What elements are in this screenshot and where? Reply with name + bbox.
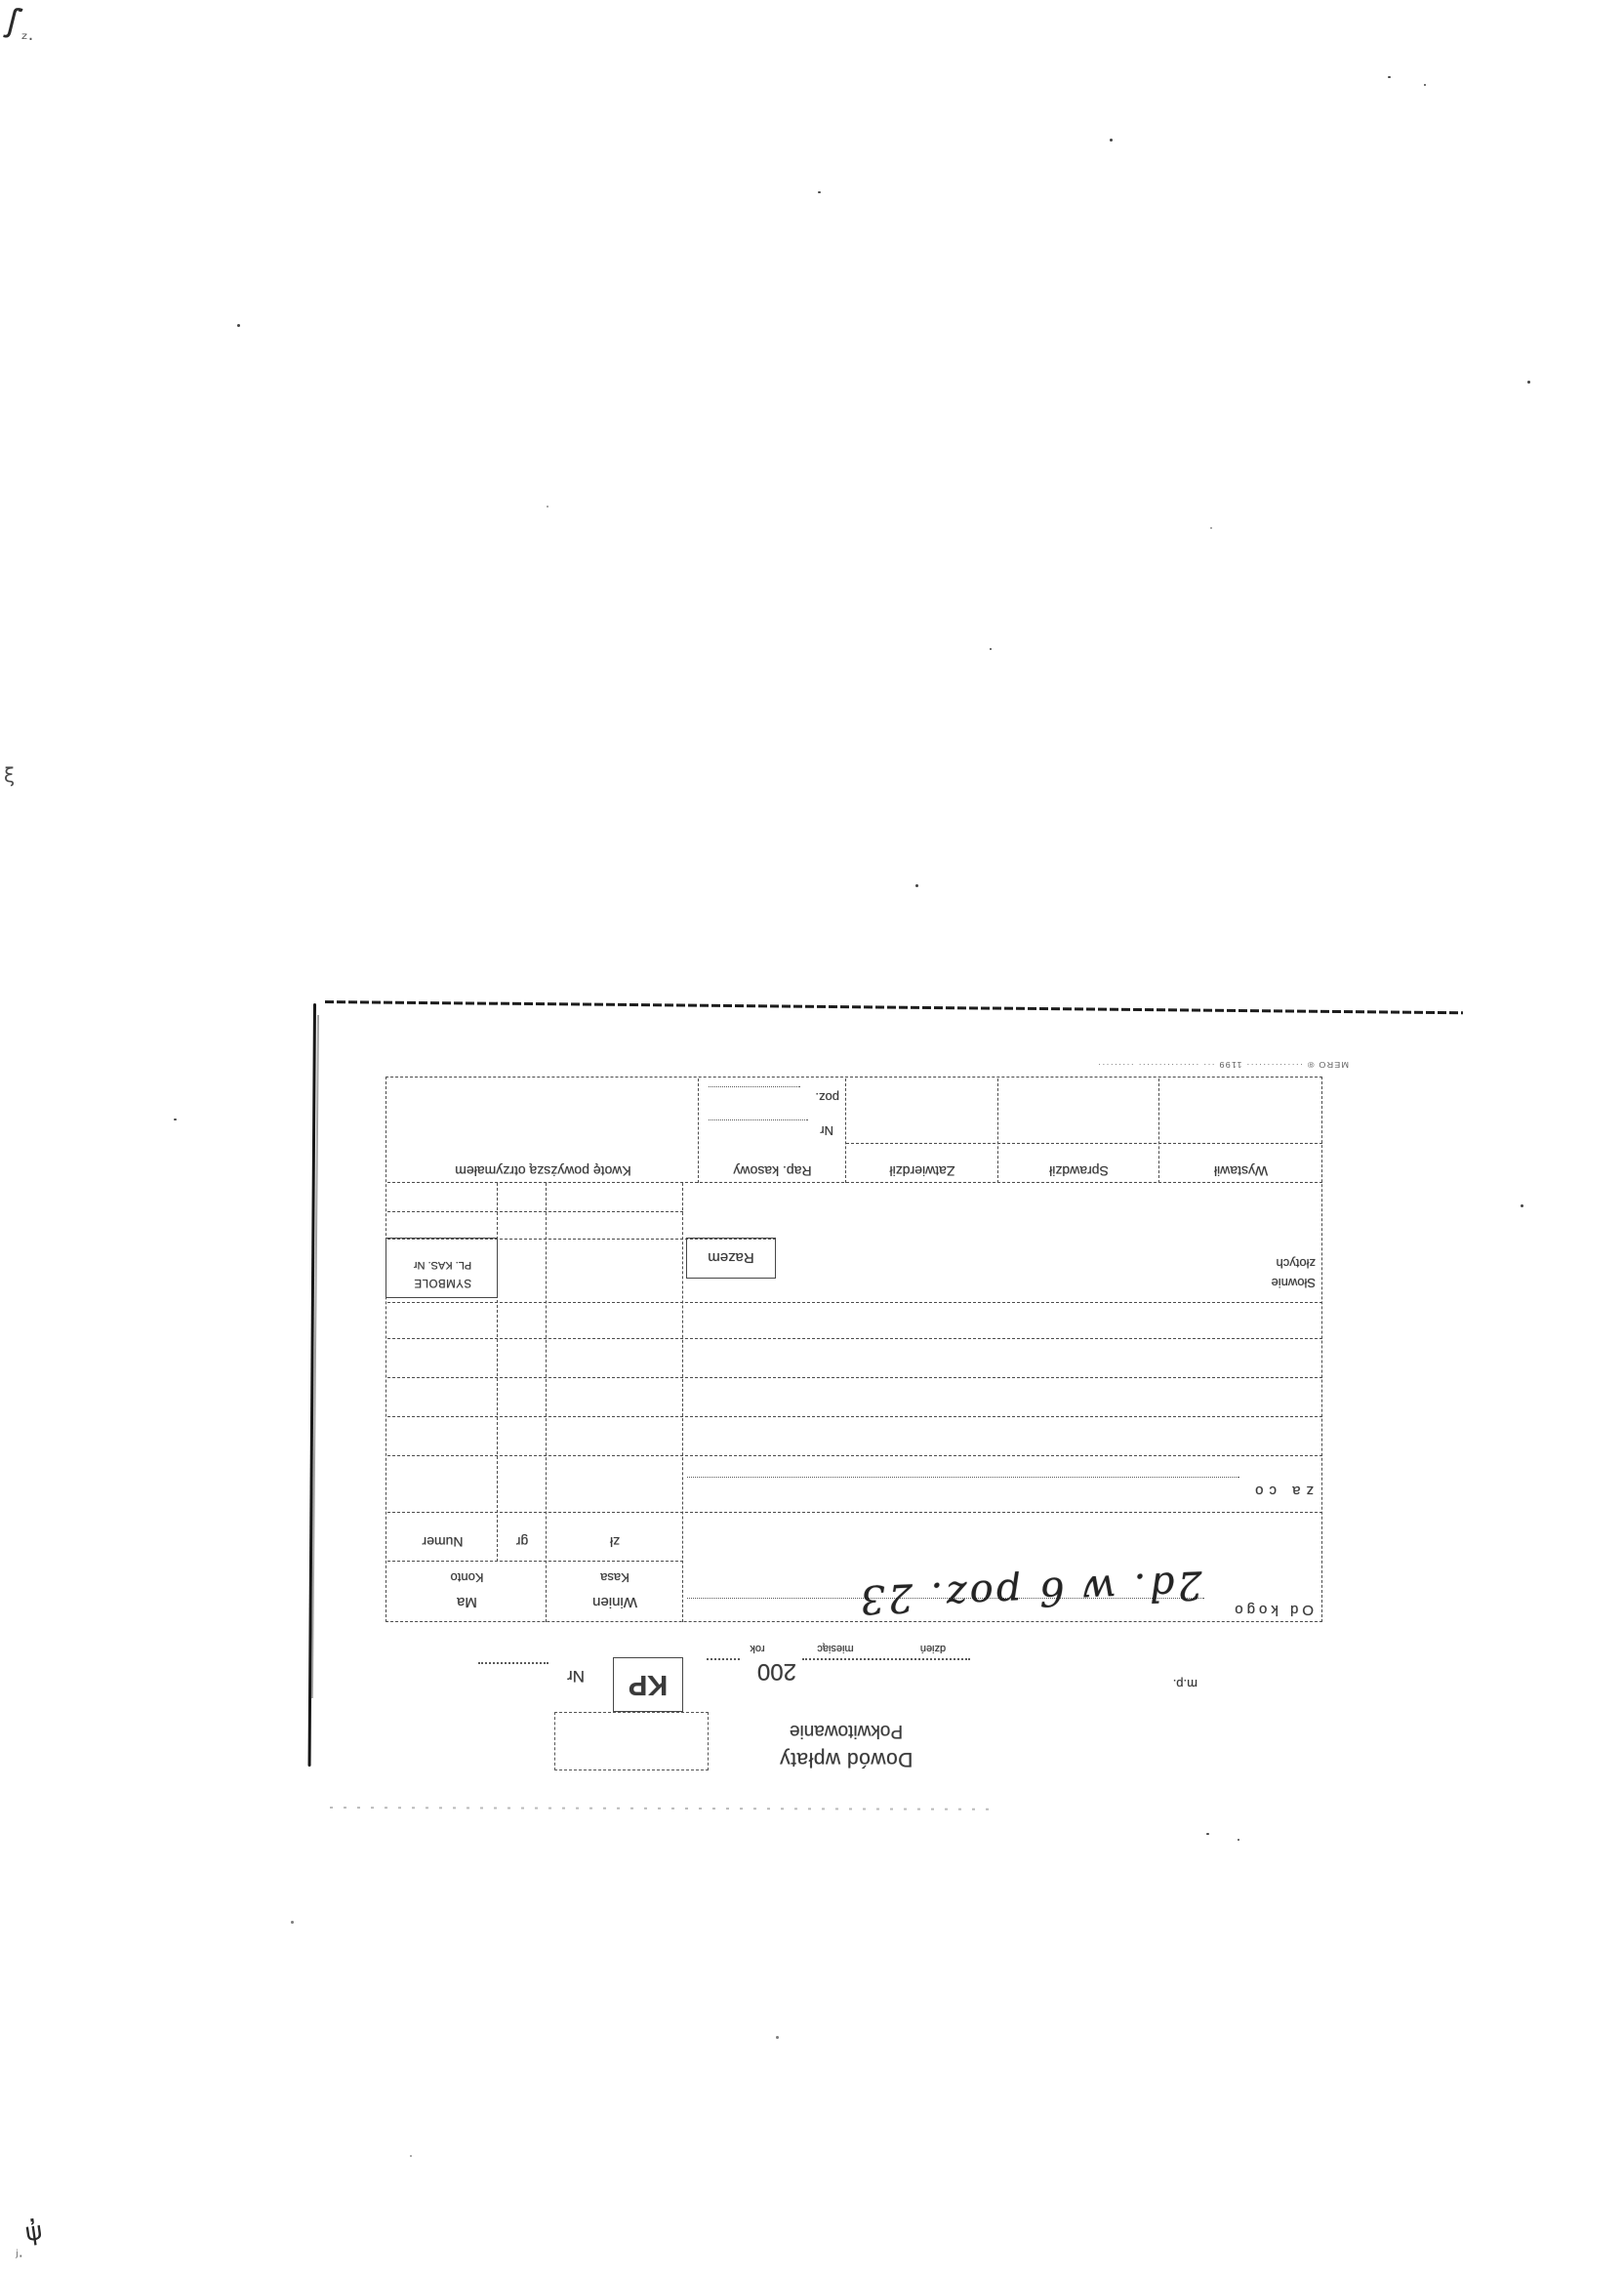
rap-poz-label: poz. — [815, 1090, 839, 1105]
scanned-document-page: ʃ͘ ᶻ· ξ ψ̓ ʲ· m.p. Dowód wpłaty Pokwitow… — [0, 0, 1624, 2278]
scan-noise: ʲ· — [16, 2247, 23, 2265]
column-header-numer: Numer — [387, 1534, 498, 1550]
footer-box-sprawdzil: Sprawdził — [998, 1163, 1159, 1179]
year-fill-line — [707, 1658, 740, 1660]
rap-nr-fill-line — [709, 1119, 808, 1120]
symbole-label-2: PL. KAS. Nr — [387, 1259, 498, 1271]
scan-noise: ᶻ· — [21, 29, 33, 50]
za-co-label: za co — [1249, 1483, 1314, 1499]
column-header-gr: gr — [498, 1534, 547, 1550]
footer-box-zatwierdzil: Zatwierdził — [846, 1163, 998, 1179]
debit-sub-label: Kasa — [547, 1570, 683, 1585]
slownie-label-2: złotych — [1277, 1256, 1316, 1271]
footer-box-kwote-otrzymalem: Kwotę powyższą otrzymałem — [387, 1163, 699, 1179]
grid-line — [682, 1183, 683, 1622]
scan-noise: ψ̓ — [23, 2217, 44, 2248]
grid-line — [387, 1302, 1322, 1303]
form-subtitle: Pokwitowanie — [758, 1720, 934, 1741]
footer-box-rap-kasowy: Rap. kasowy — [699, 1163, 846, 1179]
za-co-fill-line — [687, 1477, 1239, 1478]
od-kogo-label: Od kogo — [1231, 1602, 1314, 1618]
grid-line — [387, 1455, 1322, 1456]
mp-label: m.p. — [1173, 1677, 1198, 1691]
date-day-label: dzień — [910, 1643, 956, 1654]
razem-cell: Razem — [686, 1238, 776, 1279]
printer-imprint: MERO ® ·············· 1199 ··· ·········… — [1097, 1060, 1349, 1069]
grid-line — [546, 1183, 547, 1622]
year-prefix: 200 — [757, 1657, 796, 1685]
date-fill-line — [802, 1658, 970, 1660]
grid-line — [387, 1512, 1322, 1513]
doc-symbol-box: KP — [613, 1657, 683, 1712]
stamp-box-empty — [554, 1712, 709, 1770]
debit-label: Winien — [547, 1594, 683, 1610]
nr-fill-line — [478, 1662, 548, 1664]
date-month-label: miesiąc — [800, 1643, 871, 1654]
grid-line — [387, 1182, 1322, 1183]
form-title: Dowód wpłaty — [758, 1747, 934, 1770]
slownie-label: Słownie — [1271, 1276, 1316, 1290]
kp-receipt-form: m.p. Dowód wpłaty Pokwitowanie KP Nr 200… — [312, 1003, 1495, 1815]
credit-label: Ma — [387, 1594, 547, 1610]
scan-noise: ʃ͘ — [3, 1, 23, 42]
symbole-label-1: SYMBOLE — [387, 1277, 498, 1288]
rap-poz-fill-line — [709, 1086, 800, 1087]
column-header-zl: zł — [547, 1534, 683, 1550]
rap-nr-label: Nr — [820, 1123, 833, 1138]
date-year-label: rok — [738, 1643, 777, 1654]
signature-strip-line — [846, 1143, 1322, 1144]
nr-label: Nr — [567, 1666, 585, 1686]
grid-line — [387, 1377, 1322, 1378]
grid-line — [387, 1211, 683, 1212]
credit-sub-label: Konto — [387, 1570, 547, 1585]
grid-line — [387, 1416, 1322, 1417]
grid-line — [387, 1338, 1322, 1339]
scan-noise: ξ — [4, 763, 15, 787]
footer-box-wystawil: Wystawił — [1159, 1163, 1322, 1179]
grid-line — [387, 1561, 683, 1562]
